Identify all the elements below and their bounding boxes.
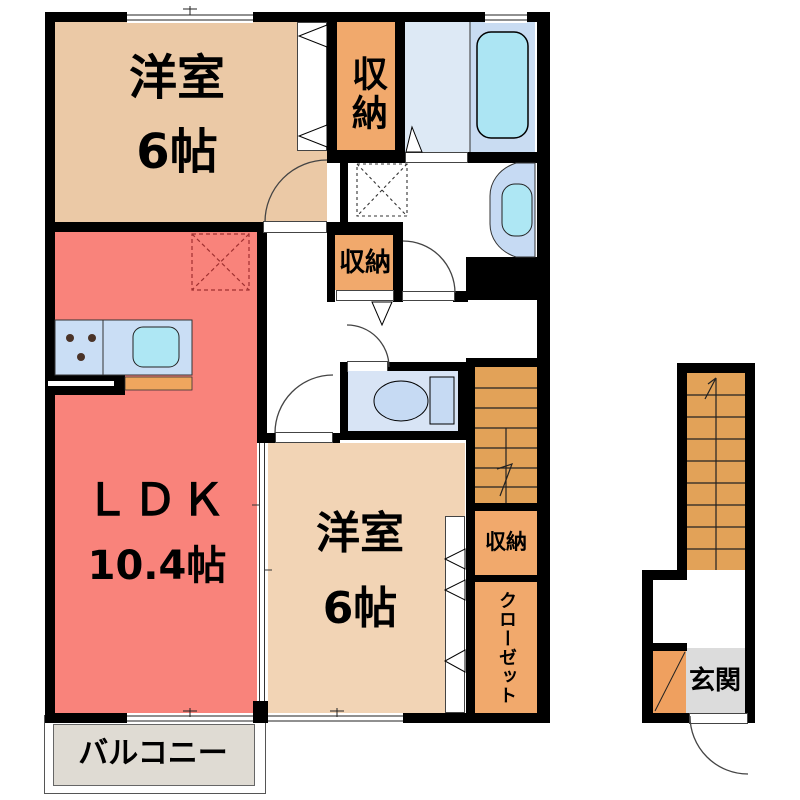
wall [468,152,537,163]
wall [45,12,55,723]
balcony-label: バルコニー [78,731,227,778]
floor-plan: 洋室 6帖 収納 収納 ＬＤＫ 10.4帖 洋室 6帖 収納 クローゼット バル… [0,0,800,800]
room-label-genkan: 玄関 [682,664,748,698]
wall [466,575,537,582]
room-label-west-bottom: 洋室 6帖 [275,492,445,652]
room-label-balcony: バルコニー [58,734,248,774]
wall [395,12,405,163]
wall [327,222,403,235]
wall [257,433,275,443]
wall [340,431,466,440]
wall [327,150,405,163]
wall [466,257,537,300]
storage-label: 収納 [338,55,394,133]
storage-label: 収納 [485,526,527,559]
door-leaf [263,221,327,233]
wall [677,363,755,373]
room-name: 洋室 [316,497,404,572]
wall [45,12,550,22]
room-label-ldk: ＬＤＫ 10.4帖 [62,462,252,602]
room-name: ＬＤＫ [85,467,229,535]
closet-label: クローゼット [492,591,520,705]
room-name: 洋室 [129,41,225,115]
room-label-storage-top: 収納 [336,38,396,150]
room-label-west-top: 洋室 6帖 [88,40,266,190]
genkan-label: 玄関 [689,661,741,701]
door-leaf [689,713,748,724]
storage-label: 収納 [339,243,391,283]
sliding-door-symbol [445,516,465,713]
wall [257,222,267,433]
wall [466,503,537,511]
door-leaf [275,432,333,443]
wall [340,362,348,440]
room-size: 10.4帖 [88,535,227,597]
door-leaf [347,361,388,372]
wall [253,701,268,714]
washer-pan-icon [357,164,407,216]
wall [645,643,687,651]
sliding-door-symbol [297,22,327,151]
wall [333,433,340,443]
wall [677,363,687,580]
washbasin-icon [490,163,535,257]
toilet-icon [348,371,458,431]
wall [537,12,550,723]
wall [466,358,537,367]
wall [340,163,348,233]
room-size: 6帖 [136,115,217,189]
door-leaf [336,290,394,301]
room-label-storage-right: 収納 [473,527,539,557]
bathroom-floor [405,22,535,152]
wall [458,362,466,440]
door-leaf [402,291,455,301]
stairs-main-floor [475,367,537,503]
door-leaf [405,152,468,163]
wall [45,222,263,232]
room-label-closet: クローゼット [478,586,534,710]
room-label-storage-hall: 収納 [328,246,402,280]
wall [642,713,690,723]
wall [453,291,468,302]
room-size: 6帖 [323,572,398,647]
stairs-entrance-floor [687,373,745,570]
